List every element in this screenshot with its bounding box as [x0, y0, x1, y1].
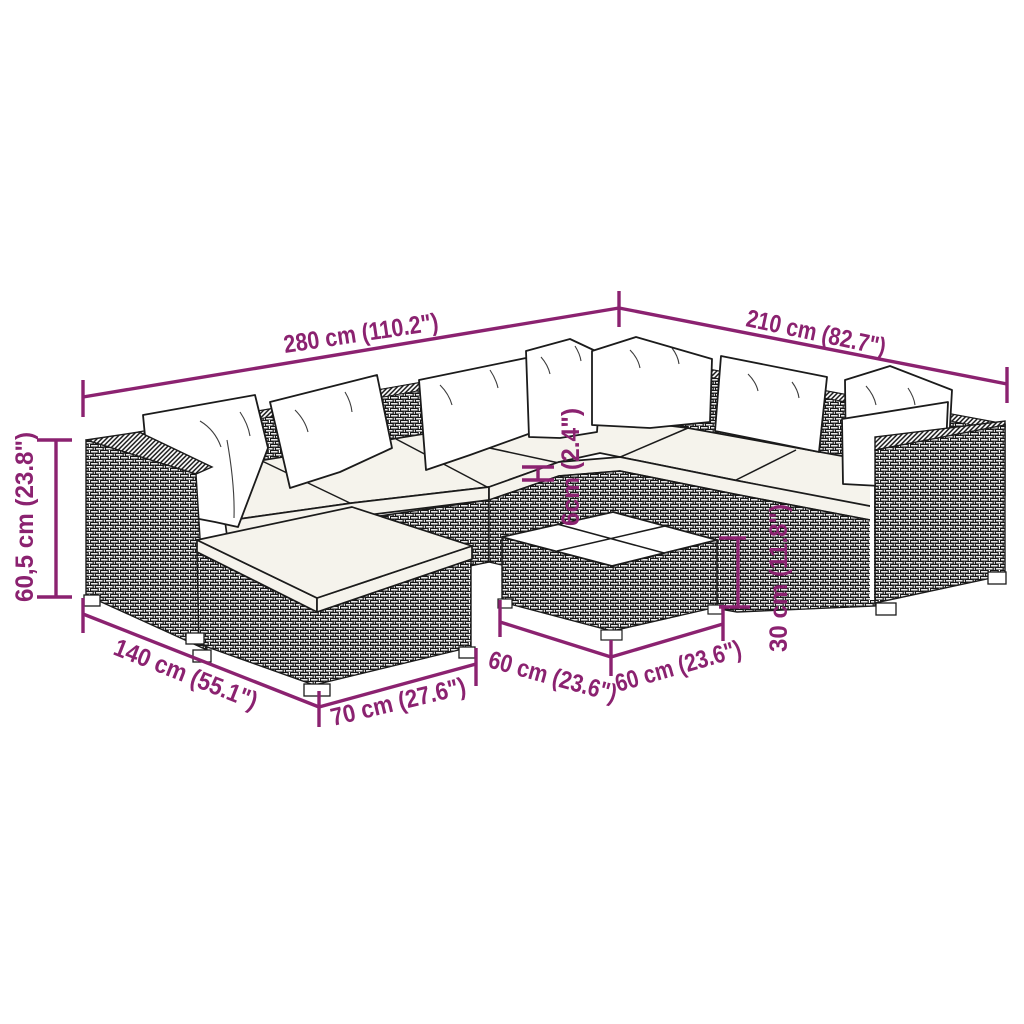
svg-text:60,5 cm (23.8"): 60,5 cm (23.8")	[11, 432, 39, 602]
svg-text:6cm (2.4"): 6cm (2.4")	[557, 408, 585, 526]
svg-text:30 cm (11.8"): 30 cm (11.8")	[765, 504, 793, 652]
